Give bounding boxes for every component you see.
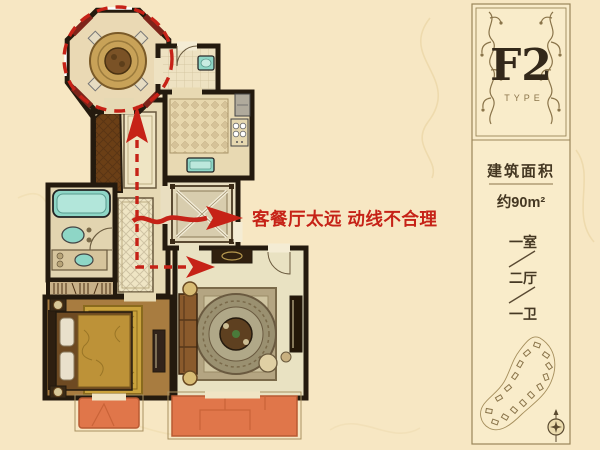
floor-lamp — [259, 354, 277, 372]
annotation-text: 客餐厅太远 动线不合理 — [251, 209, 437, 229]
bedroom-bench — [153, 330, 165, 372]
living-balcony — [168, 392, 301, 440]
bedroom-balcony — [75, 394, 143, 432]
coffee-table — [220, 318, 252, 350]
pillow — [60, 318, 74, 346]
bathtub — [53, 190, 110, 217]
balcony-door-opening — [205, 392, 260, 399]
living-door-opening — [268, 244, 290, 253]
type-label: TYPE — [504, 93, 544, 103]
rooms-item-baths: 一卫 — [509, 306, 537, 322]
foyer-door-opening — [234, 222, 243, 242]
stove — [231, 119, 248, 146]
balcony-door-opening — [92, 394, 126, 401]
kitchen-sink — [187, 158, 214, 172]
lamp — [54, 301, 63, 310]
side-table — [183, 282, 197, 296]
bedroom-door-opening — [124, 293, 156, 302]
rooms-item-halls: 二厅 — [509, 270, 537, 286]
type-code: F2 — [490, 40, 552, 91]
info-panel: F2 TYPE 建筑面积 约90m² 一室 二厅 一卫 — [472, 4, 570, 444]
console-cabinet — [212, 249, 252, 263]
bedroom — [45, 293, 172, 399]
bathroom — [48, 185, 115, 280]
opening-from-hall — [179, 244, 199, 253]
sofa — [179, 294, 197, 374]
opening-to-dining — [154, 58, 163, 84]
floor-plan-page: 客餐厅太远 动线不合理 F2 TYPE 建筑面积 约90m² 一室 二厅 一卫 — [0, 0, 600, 450]
lamp — [54, 388, 63, 397]
bed — [48, 310, 132, 390]
area-value: 约90m² — [497, 193, 546, 211]
kitchen-tile — [170, 99, 228, 153]
rooms-item-bedrooms: 一室 — [509, 234, 537, 250]
dining-table — [88, 31, 148, 91]
pillow — [60, 352, 74, 380]
floor-plan-canvas: 客餐厅太远 动线不合理 F2 TYPE 建筑面积 约90m² 一室 二厅 一卫 — [0, 0, 600, 450]
vanity-sink — [52, 250, 107, 270]
side-table — [183, 371, 197, 385]
wardrobe — [48, 280, 115, 297]
nightstand — [50, 386, 66, 398]
blanket — [78, 315, 130, 387]
tv-cabinet — [290, 296, 302, 352]
opening-to-entry — [172, 88, 202, 97]
plant-pot — [281, 352, 291, 362]
area-label: 建筑面积 — [487, 162, 555, 180]
kitchen — [165, 88, 252, 179]
nightstand — [50, 299, 66, 311]
